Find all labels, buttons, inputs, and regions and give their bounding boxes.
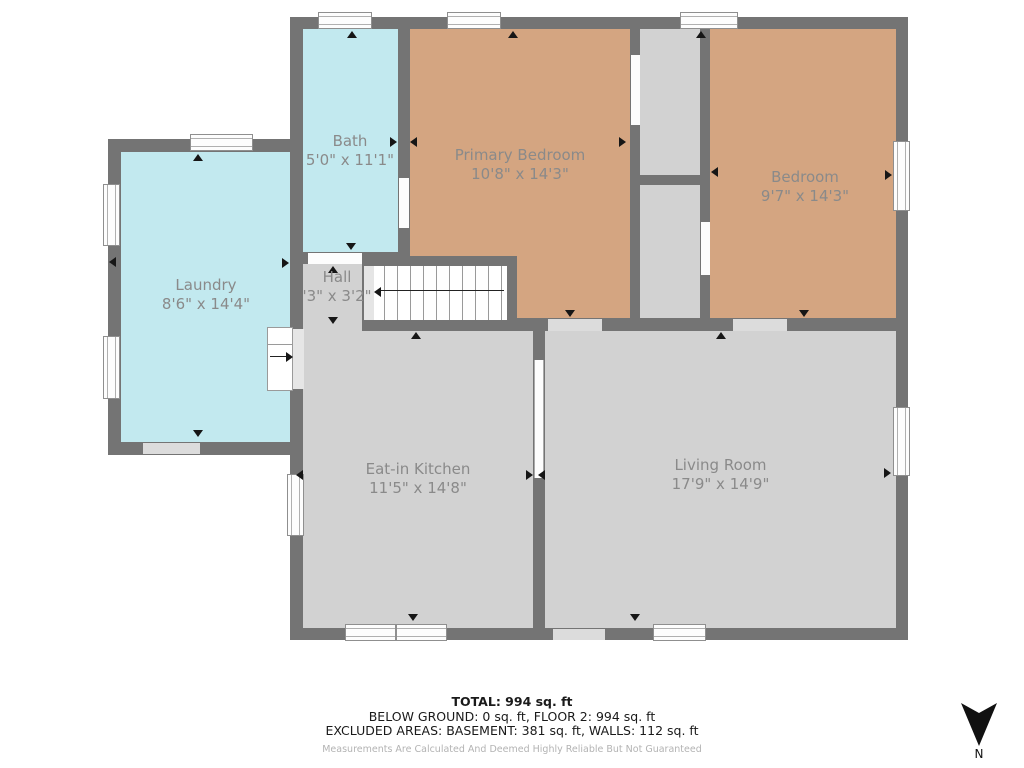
room-name: Living Room xyxy=(545,456,896,475)
cased-opening xyxy=(534,360,544,478)
entry-arrowhead-icon xyxy=(286,352,293,362)
direction-marker-icon xyxy=(538,470,545,480)
direction-marker-icon xyxy=(630,614,640,621)
direction-marker-icon xyxy=(565,310,575,317)
excluded-area-text: EXCLUDED AREAS: BASEMENT: 381 sq. ft, WA… xyxy=(0,723,1024,738)
room-dims: 8'6" x 14'4" xyxy=(120,295,292,314)
room-dims: '3" x 3'2" xyxy=(294,287,380,306)
room-name: Bath xyxy=(290,132,410,151)
room-dims: 9'7" x 14'3" xyxy=(710,187,900,206)
room-name: Primary Bedroom xyxy=(410,146,630,165)
door-opening xyxy=(143,443,200,454)
door-opening xyxy=(548,319,602,331)
window xyxy=(318,12,372,29)
room-name: Eat-in Kitchen xyxy=(303,460,533,479)
direction-marker-icon xyxy=(411,332,421,339)
direction-marker-icon xyxy=(408,614,418,621)
room-closet-upper xyxy=(640,29,700,175)
direction-marker-icon xyxy=(193,430,203,437)
direction-marker-icon xyxy=(346,243,356,250)
door-opening xyxy=(308,253,362,264)
door-opening xyxy=(553,629,605,640)
disclaimer-text: Measurements Are Calculated And Deemed H… xyxy=(0,744,1024,755)
direction-marker-icon xyxy=(296,470,303,480)
wall xyxy=(630,175,710,185)
north-arrow-icon xyxy=(960,703,998,747)
wall xyxy=(896,17,908,640)
room-label-kitchen: Eat-in Kitchen 11'5" x 14'8" xyxy=(303,460,533,498)
door-opening xyxy=(399,178,409,228)
room-dims: 5'0" x 11'1" xyxy=(290,151,410,170)
floors-area-text: BELOW GROUND: 0 sq. ft, FLOOR 2: 994 sq.… xyxy=(0,709,1024,724)
room-label-living-room: Living Room 17'9" x 14'9" xyxy=(545,456,896,494)
direction-marker-icon xyxy=(347,31,357,38)
wall xyxy=(108,442,303,455)
wall xyxy=(290,17,908,29)
window xyxy=(103,184,120,246)
room-label-bedroom: Bedroom 9'7" x 14'3" xyxy=(710,168,900,206)
window xyxy=(190,134,253,151)
room-name: Bedroom xyxy=(710,168,900,187)
door-opening xyxy=(631,55,640,125)
direction-marker-icon xyxy=(799,310,809,317)
direction-marker-icon xyxy=(716,332,726,339)
stairs-direction-line xyxy=(378,290,504,291)
window xyxy=(653,624,706,641)
direction-marker-icon xyxy=(328,317,338,324)
stair-treads xyxy=(372,266,507,320)
room-label-laundry: Laundry 8'6" x 14'4" xyxy=(120,276,292,314)
direction-marker-icon xyxy=(193,154,203,161)
window xyxy=(680,12,738,29)
window xyxy=(345,624,396,641)
room-dims: 10'8" x 14'3" xyxy=(410,165,630,184)
room-dims: 11'5" x 14'8" xyxy=(303,479,533,498)
room-dims: 17'9" x 14'9" xyxy=(545,475,896,494)
direction-marker-icon xyxy=(109,257,116,267)
room-label-bath: Bath 5'0" x 11'1" xyxy=(290,132,410,170)
direction-marker-icon xyxy=(282,258,289,268)
window xyxy=(287,474,304,536)
north-label: N xyxy=(960,747,998,761)
room-name: Hall xyxy=(294,268,380,287)
room-name: Laundry xyxy=(120,276,292,295)
direction-marker-icon xyxy=(696,31,706,38)
room-label-hall: Hall '3" x 3'2" xyxy=(294,268,380,306)
window xyxy=(103,336,120,399)
window xyxy=(396,624,447,641)
room-closet-lower xyxy=(640,185,700,318)
wall xyxy=(700,17,710,330)
staircase xyxy=(362,256,517,331)
total-area-text: TOTAL: 994 sq. ft xyxy=(0,694,1024,709)
direction-marker-icon xyxy=(508,31,518,38)
floor-plan: Bath 5'0" x 11'1" Primary Bedroom 10'8" … xyxy=(0,0,1024,768)
door-opening xyxy=(701,222,710,275)
door-opening xyxy=(733,319,787,331)
room-label-primary-bedroom: Primary Bedroom 10'8" x 14'3" xyxy=(410,146,630,184)
window xyxy=(447,12,501,29)
